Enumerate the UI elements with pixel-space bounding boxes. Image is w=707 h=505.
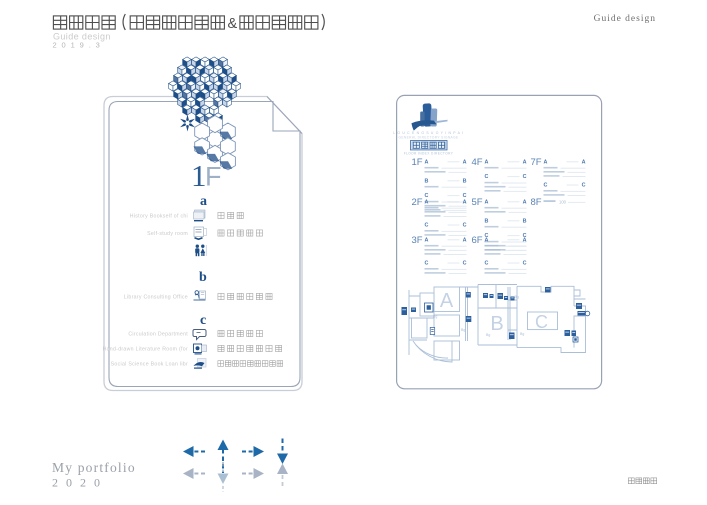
svg-text:A: A <box>544 159 548 165</box>
svg-text:Guide design: Guide design <box>594 14 656 24</box>
svg-text:GENERAL DIRECTORY SIGNAGE: GENERAL DIRECTORY SIGNAGE <box>398 135 458 139</box>
svg-text:C: C <box>582 182 586 188</box>
svg-text:A: A <box>582 159 586 165</box>
svg-text:B: B <box>485 218 489 224</box>
svg-text:4F: 4F <box>472 157 483 168</box>
svg-text:My portfolio: My portfolio <box>52 460 136 475</box>
svg-text:A: A <box>425 199 429 205</box>
svg-text:A: A <box>463 159 467 165</box>
svg-text:A: A <box>485 159 489 165</box>
svg-text:B: B <box>523 218 527 224</box>
svg-text:2 0 1 9 . 3: 2 0 1 9 . 3 <box>53 41 102 50</box>
svg-text:FLOOR INDEX DIRECTORY: FLOOR INDEX DIRECTORY <box>404 152 454 156</box>
svg-text:B: B <box>490 313 503 335</box>
svg-text:Bg: Bg <box>520 332 524 336</box>
svg-text:A: A <box>463 237 467 243</box>
svg-text:Bg: Bg <box>486 333 490 337</box>
svg-text:6F: 6F <box>472 235 483 246</box>
svg-text:100: 100 <box>559 199 567 204</box>
svg-text:A: A <box>523 237 527 243</box>
svg-text:B: B <box>463 178 467 184</box>
svg-text:C: C <box>463 260 467 266</box>
svg-text:b: b <box>199 270 207 285</box>
svg-text:A: A <box>440 290 454 312</box>
svg-text:C: C <box>425 193 429 199</box>
svg-text:2 0 2 0: 2 0 2 0 <box>52 476 103 490</box>
svg-text:C: C <box>425 222 429 228</box>
svg-text:A: A <box>425 237 429 243</box>
svg-text:Circulation Department: Circulation Department <box>128 332 188 338</box>
svg-text:3F: 3F <box>412 235 423 246</box>
svg-text:A: A <box>463 199 467 205</box>
svg-text:8F: 8F <box>531 197 542 208</box>
svg-text:Bg: Bg <box>461 328 465 332</box>
svg-text:&: & <box>228 16 238 32</box>
svg-text:C: C <box>463 193 467 199</box>
svg-text:Self-study room: Self-study room <box>147 231 188 237</box>
svg-text:Hand-drawn Literature Room (fo: Hand-drawn Literature Room (for <box>103 347 188 353</box>
svg-text:L O U C E N G S U O Y I N P A: L O U C E N G S U O Y I N P A I <box>393 131 463 135</box>
svg-text:Library Consulting Office: Library Consulting Office <box>124 295 188 301</box>
svg-text:Bg: Bg <box>515 295 519 299</box>
svg-text:A: A <box>523 159 527 165</box>
svg-text:B: B <box>425 178 429 184</box>
svg-text:A: A <box>485 237 489 243</box>
svg-text:A: A <box>523 199 527 205</box>
svg-text:Bg: Bg <box>433 315 437 319</box>
svg-text:5F: 5F <box>472 197 483 208</box>
svg-text:C: C <box>425 260 429 266</box>
svg-text:A: A <box>425 159 429 165</box>
svg-text:c: c <box>200 313 206 328</box>
svg-text:History Bookself of chi: History Bookself of chi <box>130 214 188 220</box>
svg-text:C: C <box>463 222 467 228</box>
svg-text:Social Science Book Loan libr: Social Science Book Loan libr <box>111 362 188 368</box>
svg-text:F: F <box>205 162 222 192</box>
svg-text:C: C <box>523 260 527 266</box>
svg-text:C: C <box>485 260 489 266</box>
svg-text:C: C <box>485 174 489 180</box>
svg-text:C: C <box>535 312 548 332</box>
svg-text:1F: 1F <box>412 157 423 168</box>
svg-text:2F: 2F <box>412 197 423 208</box>
svg-text:C: C <box>544 182 548 188</box>
svg-text:C: C <box>523 174 527 180</box>
svg-text:a: a <box>200 194 207 209</box>
svg-text:A: A <box>485 199 489 205</box>
